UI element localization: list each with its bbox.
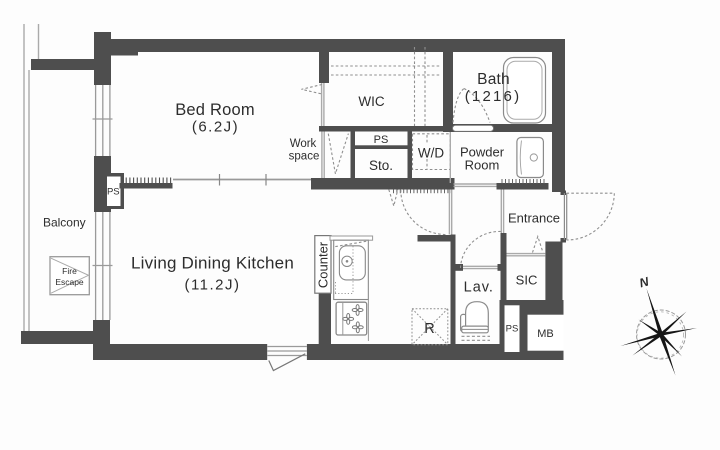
svg-text:MB: MB	[537, 328, 554, 340]
svg-text:PS: PS	[374, 134, 389, 146]
svg-text:Bed Room: Bed Room	[175, 101, 255, 119]
svg-text:WIC: WIC	[358, 94, 384, 109]
svg-text:SIC: SIC	[516, 273, 538, 288]
svg-text:Balcony: Balcony	[43, 216, 86, 230]
svg-text:(6.2J): (6.2J)	[192, 119, 239, 136]
svg-text:Living Dining Kitchen: Living Dining Kitchen	[131, 254, 294, 273]
svg-text:Lav.: Lav.	[464, 280, 494, 296]
svg-text:Bath: Bath	[477, 71, 510, 88]
svg-text:W/D: W/D	[418, 146, 444, 161]
svg-text:(1216): (1216)	[465, 88, 522, 105]
svg-text:Work: Work	[290, 138, 317, 150]
svg-text:Entrance: Entrance	[508, 211, 560, 226]
svg-text:R: R	[424, 321, 434, 337]
svg-text:Counter: Counter	[316, 241, 331, 288]
svg-text:PS: PS	[506, 324, 519, 335]
svg-text:PS: PS	[107, 187, 120, 198]
svg-text:(11.2J): (11.2J)	[184, 277, 240, 294]
svg-text:space: space	[289, 151, 320, 163]
svg-text:Escape: Escape	[55, 277, 84, 287]
svg-text:Sto.: Sto.	[369, 158, 393, 173]
svg-text:Fire: Fire	[62, 266, 77, 276]
svg-text:Room: Room	[465, 158, 500, 173]
